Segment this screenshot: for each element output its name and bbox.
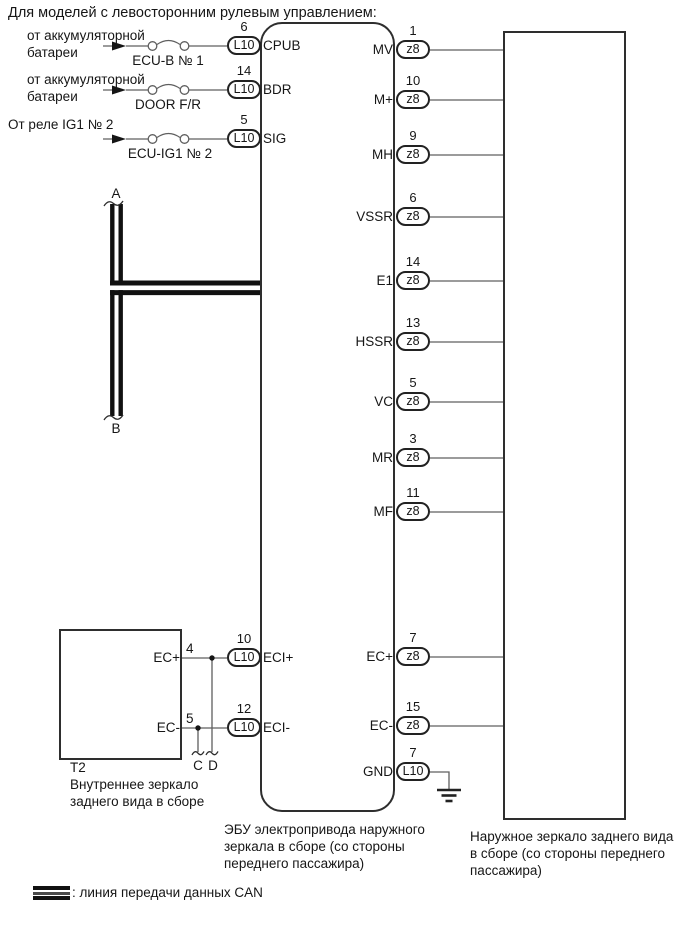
- connector-code: z8: [406, 274, 419, 287]
- can-line-icon: [33, 886, 70, 900]
- pin-number: 6: [227, 19, 261, 34]
- connector-oval: L10: [227, 129, 261, 148]
- connector-oval: z8: [396, 647, 430, 666]
- can-label-a: A: [107, 186, 125, 201]
- fuse-label: ECU-IG1 № 2: [122, 146, 218, 162]
- pin-number: 12: [227, 701, 261, 716]
- connector-oval: L10: [227, 80, 261, 99]
- ecu-caption: ЭБУ электропривода наружного: [224, 821, 425, 838]
- connector-oval: L10: [227, 648, 261, 667]
- connector-oval: z8: [396, 716, 430, 735]
- t2-pin-number: 5: [186, 711, 194, 727]
- connector-code: z8: [406, 505, 419, 518]
- connector-code: z8: [406, 451, 419, 464]
- t2-pin-number: 4: [186, 641, 194, 657]
- pin-number: 9: [396, 128, 430, 143]
- inner-mirror-caption: Внутреннее зеркало: [70, 776, 198, 793]
- power-source-label: От реле IG1 № 2: [8, 117, 113, 133]
- connector-oval: z8: [396, 332, 430, 351]
- pin-number: 7: [396, 745, 430, 760]
- connector-oval: z8: [396, 502, 430, 521]
- connector-oval: z8: [396, 207, 430, 226]
- connector-oval: z8: [396, 145, 430, 164]
- pin-number: 14: [227, 63, 261, 78]
- outer-mirror-box: [503, 31, 626, 820]
- connector-code: L10: [234, 39, 255, 52]
- connector-code: z8: [406, 93, 419, 106]
- fuse-label: DOOR F/R: [120, 97, 216, 113]
- connector-oval: L10: [227, 718, 261, 737]
- can-label-b: B: [107, 421, 125, 436]
- pin-number: 7: [396, 630, 430, 645]
- connector-code: z8: [406, 43, 419, 56]
- pin-number: 11: [396, 485, 430, 500]
- pin-number: 5: [227, 112, 261, 127]
- page-title: Для моделей с левосторонним рулевым упра…: [8, 5, 377, 21]
- connector-oval: z8: [396, 448, 430, 467]
- branch-label-c: C: [191, 758, 205, 773]
- pin-number: 15: [396, 699, 430, 714]
- outer-mirror-caption: Наружное зеркало заднего вида: [470, 828, 673, 845]
- connector-code: z8: [406, 148, 419, 161]
- branch-label-d: D: [206, 758, 220, 773]
- pin-number: 10: [227, 631, 261, 646]
- pin-number: 10: [396, 73, 430, 88]
- power-source-label: батареи: [27, 45, 78, 61]
- outer-mirror-caption: в сборе (со стороны переднего: [470, 845, 665, 862]
- pin-number: 6: [396, 190, 430, 205]
- connector-code: z8: [406, 650, 419, 663]
- pin-number: 14: [396, 254, 430, 269]
- connector-code: z8: [406, 335, 419, 348]
- ecu-box: [260, 22, 395, 812]
- wiring-diagram: Для моделей с левосторонним рулевым упра…: [0, 0, 690, 952]
- connector-oval: z8: [396, 90, 430, 109]
- inner-mirror-caption: заднего вида в сборе: [70, 793, 204, 810]
- inner-mirror-id: T2: [70, 760, 86, 776]
- connector-code: z8: [406, 395, 419, 408]
- connector-oval: z8: [396, 271, 430, 290]
- connector-oval: z8: [396, 392, 430, 411]
- connector-oval: L10: [227, 36, 261, 55]
- connector-oval: L10: [396, 762, 430, 781]
- fuse-label: ECU-B № 1: [120, 53, 216, 69]
- ground-icon: [437, 790, 461, 801]
- power-source-label: батареи: [27, 89, 78, 105]
- ecu-caption: зеркала в сборе (со стороны: [224, 838, 405, 855]
- pin-number: 3: [396, 431, 430, 446]
- connector-code: L10: [234, 132, 255, 145]
- inner-mirror-box: [59, 629, 182, 760]
- pin-number: 1: [396, 23, 430, 38]
- connector-code: L10: [403, 765, 424, 778]
- pin-number: 5: [396, 375, 430, 390]
- connector-code: z8: [406, 719, 419, 732]
- pin-number: 13: [396, 315, 430, 330]
- power-source-label: от аккумуляторной: [27, 72, 145, 88]
- connector-code: L10: [234, 83, 255, 96]
- connector-code: z8: [406, 210, 419, 223]
- connector-code: L10: [234, 651, 255, 664]
- power-source-label: от аккумуляторной: [27, 28, 145, 44]
- ecu-caption: переднего пассажира): [224, 855, 364, 872]
- outer-mirror-caption: пассажира): [470, 862, 542, 879]
- connector-code: L10: [234, 721, 255, 734]
- connector-oval: z8: [396, 40, 430, 59]
- can-bus-lines: [110, 204, 260, 416]
- legend-label: : линия передачи данных CAN: [72, 885, 263, 901]
